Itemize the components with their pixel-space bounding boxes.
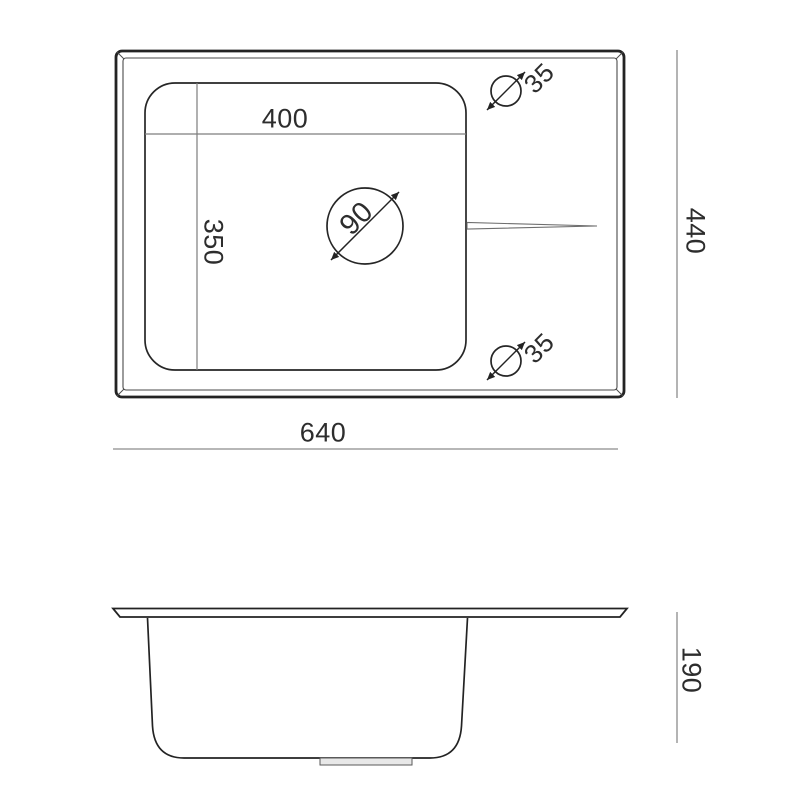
side-deck <box>113 609 627 618</box>
side-drain-tab <box>320 758 412 765</box>
drawing-linework <box>0 0 791 800</box>
side-bowl-profile <box>148 618 468 758</box>
side-view <box>113 609 627 766</box>
dim-label-inner-depth: 350 <box>200 219 227 266</box>
dim-label-overall-depth: 440 <box>682 208 709 255</box>
dim-label-inner-width: 400 <box>262 106 309 133</box>
dim-label-overall-width: 640 <box>300 420 347 447</box>
dim-label-bowl-depth: 190 <box>678 647 705 694</box>
sink-technical-drawing: 400 350 90 35 35 440 640 190 <box>0 0 791 800</box>
